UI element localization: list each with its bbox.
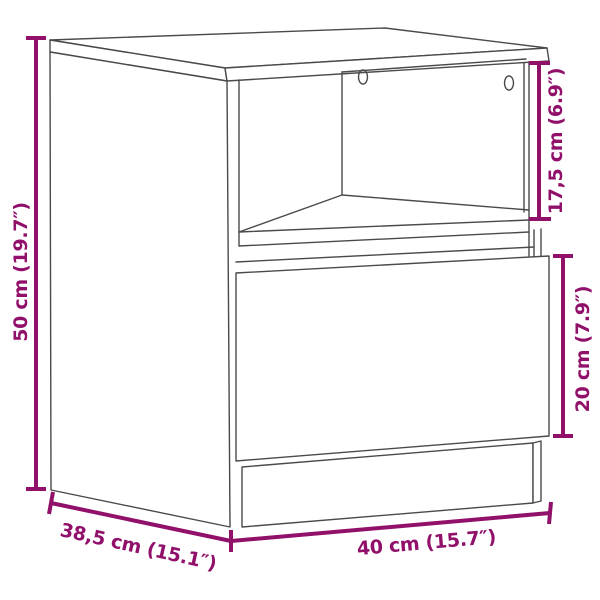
- width-right-tick: [549, 502, 551, 524]
- depth-left-tick: [49, 492, 53, 514]
- drawer-front: [236, 256, 549, 461]
- nightstand-drawing: [50, 28, 549, 527]
- opening-height-dimension-label: 17,5 cm (6.9″): [545, 68, 567, 214]
- back-panel-hole-right: [505, 76, 514, 90]
- nightstand-diagram-svg: 50 cm (19.7″) 17,5 cm (6.9″) 20 cm (7.9″…: [0, 0, 600, 600]
- dimension-height: 50 cm (19.7″): [10, 38, 46, 489]
- dimension-drawer-height: 20 cm (7.9″): [553, 256, 594, 436]
- plinth-right-return: [533, 441, 541, 503]
- height-dimension-label: 50 cm (19.7″): [10, 202, 32, 342]
- dimension-diagram: 50 cm (19.7″) 17,5 cm (6.9″) 20 cm (7.9″…: [0, 0, 600, 600]
- open-compartment: [239, 59, 529, 256]
- width-dimension-label: 40 cm (15.7″): [356, 526, 497, 560]
- shelf-thickness-edge: [239, 232, 529, 246]
- drawer-height-dimension-label: 20 cm (7.9″): [572, 286, 594, 413]
- shelf-front-edge: [239, 220, 529, 232]
- depth-dimension-label: 38,5 cm (15.1″): [58, 519, 218, 575]
- side-panel: [50, 52, 230, 527]
- dimension-opening-height: 17,5 cm (6.9″): [529, 63, 567, 219]
